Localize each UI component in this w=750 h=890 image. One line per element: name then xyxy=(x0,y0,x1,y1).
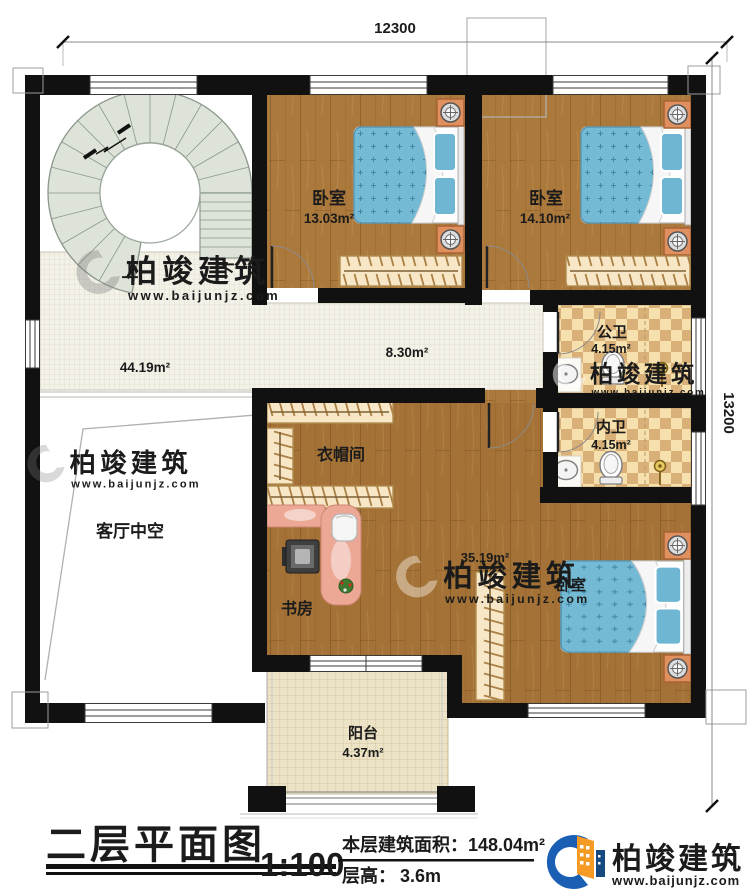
title-block: 二层平面图 1:100 本层建筑面积： 148.04m² 层高： 3.6m 柏竣… xyxy=(46,823,744,889)
plant xyxy=(339,579,353,593)
right-dimension: 13200 xyxy=(706,52,737,812)
nightstand xyxy=(437,226,464,253)
bed xyxy=(561,559,691,654)
bedroom2-label: 卧室 xyxy=(529,188,563,208)
nightstand xyxy=(664,532,691,559)
public-bath-area: 4.15m² xyxy=(591,342,631,356)
window xyxy=(90,76,197,95)
floor-plan-canvas: 柏竣建筑 www.baijunjz.com xyxy=(0,0,750,890)
top-dimension: 12300 xyxy=(57,20,733,66)
window xyxy=(26,320,40,368)
nightstand xyxy=(664,655,691,682)
nightstand xyxy=(664,101,691,128)
bedroom1-label: 卧室 xyxy=(312,188,346,208)
plan-title: 二层平面图 xyxy=(46,823,266,867)
plan-scale: 1:100 xyxy=(260,846,344,883)
toilet xyxy=(600,452,622,485)
balcony-sliding-door xyxy=(310,655,422,672)
bed xyxy=(354,125,464,225)
balcony-area: 4.37m² xyxy=(342,745,384,760)
master-bedroom-label: 卧室 xyxy=(556,576,586,594)
watermark xyxy=(27,445,200,491)
entry-threshold xyxy=(485,390,536,404)
hall-area: 44.19m² xyxy=(120,360,171,375)
window xyxy=(310,76,427,95)
nightstand xyxy=(664,228,691,255)
dimension-height-label: 13200 xyxy=(720,392,737,434)
bedroom1-area: 13.03m² xyxy=(304,211,355,226)
master-bedroom-area: 35.19m² xyxy=(461,550,510,565)
stairs-up-label: 上 xyxy=(122,262,139,281)
stairs-down-label: 下 xyxy=(218,262,235,281)
bedroom2-area: 14.10m² xyxy=(520,211,571,226)
inner-bath-label: 内卫 xyxy=(596,418,626,436)
study-label: 书房 xyxy=(281,599,313,618)
living-void-label: 客厅中空 xyxy=(95,521,164,541)
floor-area-value: 148.04m² xyxy=(468,835,545,855)
desk-chair xyxy=(332,514,357,541)
inner-bath-area: 4.15m² xyxy=(591,438,631,452)
brand-name: 柏竣建筑 xyxy=(612,842,744,876)
window xyxy=(692,432,706,505)
corridor-area: 8.30m² xyxy=(386,345,429,360)
bed xyxy=(581,125,691,225)
floor-height-label: 层高： xyxy=(342,865,396,886)
brand-url: www.baijunjz.com xyxy=(611,873,740,888)
nightstand xyxy=(437,99,464,126)
dimension-width-label: 12300 xyxy=(374,20,416,37)
balcony-label: 阳台 xyxy=(348,724,378,742)
public-bath-label: 公卫 xyxy=(597,324,627,341)
brand-logo-icon xyxy=(547,835,605,889)
floor-area-label: 本层建筑面积： xyxy=(342,834,468,855)
window xyxy=(553,76,668,95)
monitor xyxy=(282,540,319,573)
floor-plan-page: 柏竣建筑 www.baijunjz.com xyxy=(0,0,750,890)
cloakroom-label: 衣帽间 xyxy=(317,445,365,464)
window xyxy=(528,704,645,718)
floor-height-value: 3.6m xyxy=(400,866,441,886)
window xyxy=(85,704,212,723)
